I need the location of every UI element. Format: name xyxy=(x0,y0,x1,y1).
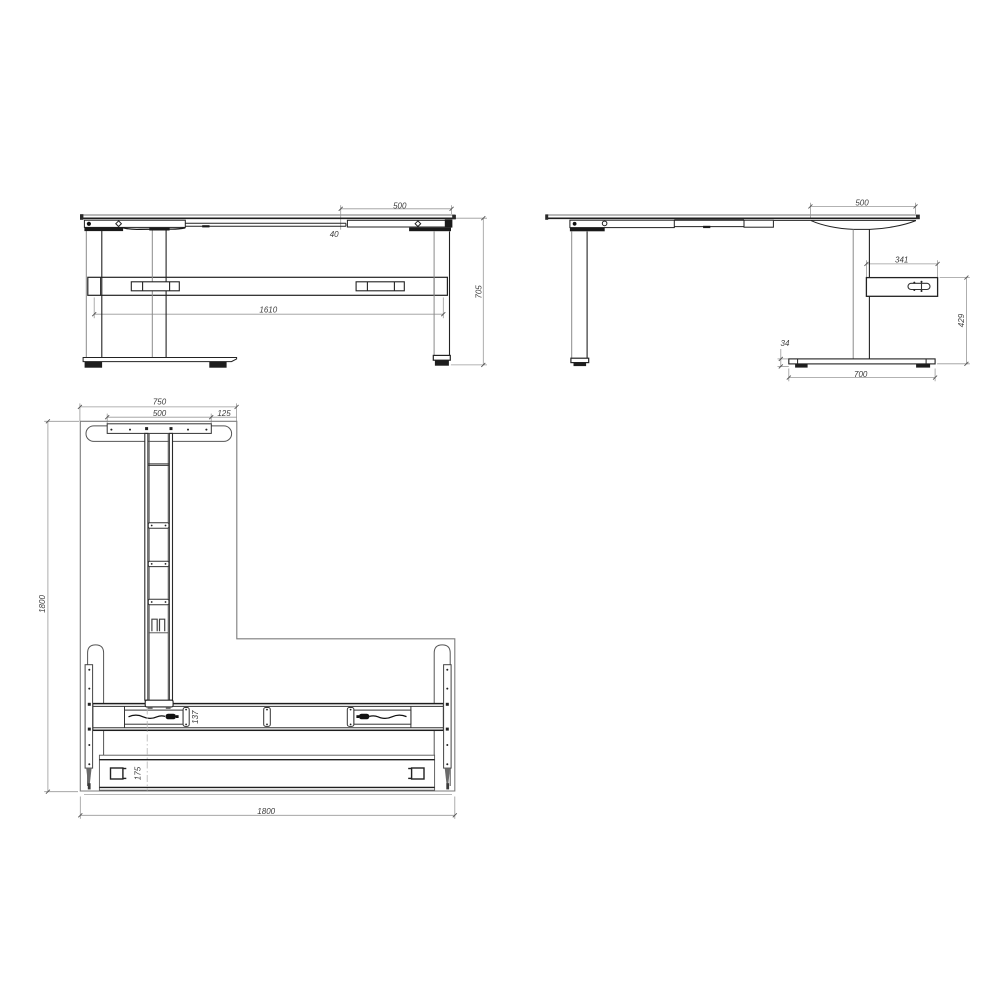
svg-text:705: 705 xyxy=(475,285,484,299)
svg-text:1800: 1800 xyxy=(257,807,275,816)
svg-text:1800: 1800 xyxy=(38,595,47,613)
svg-text:40: 40 xyxy=(330,230,339,239)
svg-text:137: 137 xyxy=(191,710,200,724)
svg-text:34: 34 xyxy=(781,339,790,348)
svg-text:175: 175 xyxy=(134,766,143,780)
svg-text:500: 500 xyxy=(153,409,167,418)
svg-text:1610: 1610 xyxy=(259,305,277,314)
svg-text:500: 500 xyxy=(393,201,407,210)
svg-text:500: 500 xyxy=(855,198,869,207)
svg-text:125: 125 xyxy=(217,409,231,418)
svg-text:700: 700 xyxy=(854,370,868,379)
svg-text:341: 341 xyxy=(895,256,908,265)
svg-text:429: 429 xyxy=(957,313,966,327)
svg-text:750: 750 xyxy=(153,398,167,407)
